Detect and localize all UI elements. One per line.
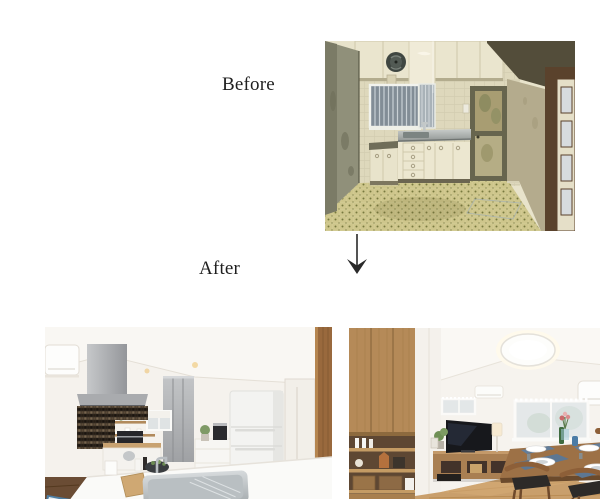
glass-door bbox=[470, 86, 507, 181]
dining-window bbox=[512, 400, 591, 442]
wooden-door bbox=[545, 67, 575, 231]
kitchen-window bbox=[147, 411, 171, 430]
before-photo bbox=[325, 41, 575, 231]
before-after-comparison: Before bbox=[0, 0, 600, 499]
after-living-art bbox=[349, 328, 600, 499]
storage-box bbox=[353, 476, 375, 490]
before-photo-art bbox=[325, 41, 575, 231]
after-photo-living bbox=[349, 328, 600, 499]
tv bbox=[446, 420, 492, 453]
down-arrow-icon: ↓ bbox=[344, 232, 370, 276]
after-kitchen-art bbox=[45, 327, 332, 499]
before-label: Before bbox=[222, 74, 275, 96]
after-label: After bbox=[199, 258, 240, 280]
air-conditioner-small-icon bbox=[475, 386, 503, 398]
after-photo-kitchen bbox=[45, 327, 332, 499]
air-conditioner-icon bbox=[45, 345, 79, 378]
storage-box bbox=[379, 476, 402, 490]
wall-switch bbox=[463, 104, 469, 113]
slit-window bbox=[442, 398, 475, 414]
oak-shelving-unit bbox=[349, 328, 415, 499]
tile-floor bbox=[325, 179, 541, 231]
